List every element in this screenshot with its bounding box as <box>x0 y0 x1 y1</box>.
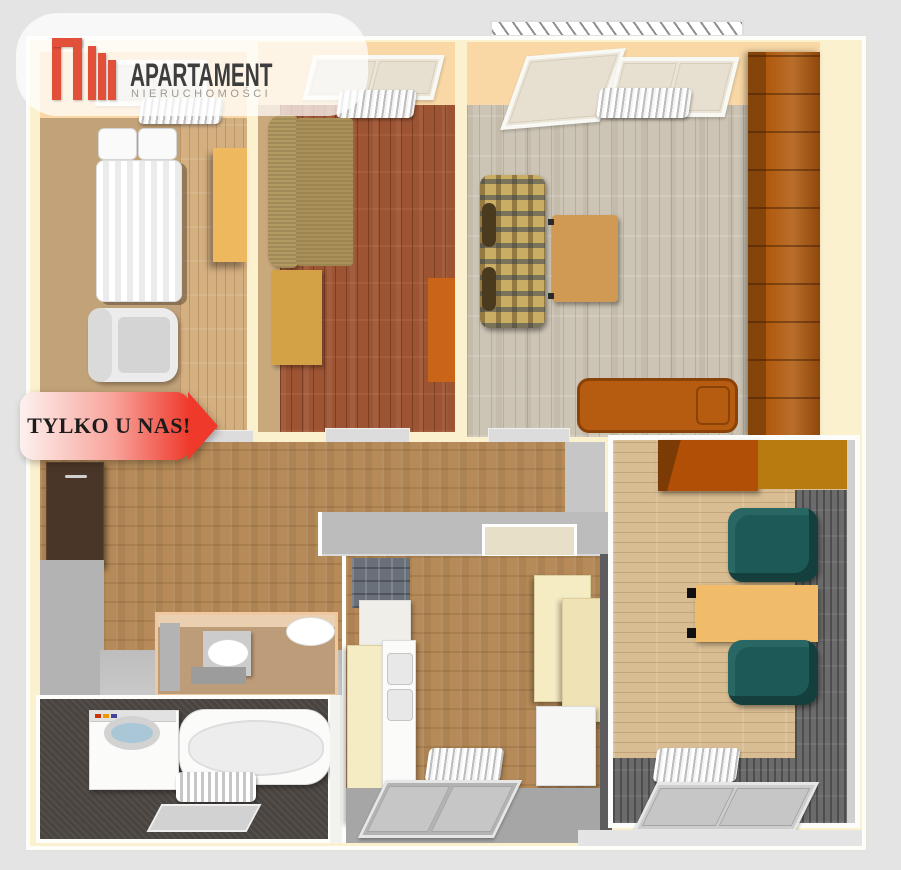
sink-basin <box>387 653 413 685</box>
counter-opening <box>482 524 577 558</box>
lounge-cabinet <box>272 270 322 365</box>
washing-machine-light <box>103 714 109 718</box>
hallway-wall-gray <box>40 560 104 700</box>
toilet <box>286 617 335 646</box>
coffee-table <box>552 215 618 302</box>
hallway-wardrobe <box>46 462 104 567</box>
table-leg <box>548 219 554 225</box>
armchair-seat <box>118 317 170 373</box>
sofa-armrest <box>482 203 496 247</box>
room-study <box>608 435 860 828</box>
study-desk <box>695 585 818 642</box>
logo-mark-icon <box>73 38 82 100</box>
kitchen-window <box>358 780 522 838</box>
logo: APARTAMENT NIERUCHOMOŚCI <box>0 0 370 120</box>
lounge-sofa-back <box>268 115 298 268</box>
washing-machine <box>89 710 179 790</box>
daybed <box>577 378 738 433</box>
floorplan-canvas: APARTAMENT NIERUCHOMOŚCI TYLKO U NAS! <box>0 0 901 870</box>
study-cabinet-ochre <box>758 440 847 489</box>
lounge-sofa-seat <box>296 118 353 266</box>
wardrobe-handle <box>65 475 87 478</box>
promo-badge: TYLKO U NAS! <box>20 392 236 460</box>
wc-wall-left <box>160 623 180 691</box>
desk-leg <box>687 628 696 638</box>
armchair-back <box>88 308 112 382</box>
bath-mat <box>176 772 256 802</box>
study-wall-face <box>847 440 855 823</box>
lounge-rug <box>428 278 455 382</box>
hallway-wall-right <box>565 442 605 514</box>
room-kitchen <box>342 556 605 843</box>
plaid-sofa <box>480 175 545 328</box>
bedroom-armchair <box>88 308 178 382</box>
washing-machine-light <box>111 714 117 718</box>
room-living <box>467 42 820 437</box>
window-pane <box>718 788 810 826</box>
washbasin <box>207 639 249 667</box>
double-bed <box>96 160 182 302</box>
bed-pillow <box>98 128 137 160</box>
kitchen-radiator-icon <box>425 748 505 782</box>
logo-subtitle: NIERUCHOMOŚCI <box>131 88 271 100</box>
logo-mark-icon <box>108 60 116 100</box>
kitchen-counter <box>382 640 416 792</box>
study-cabinet-dark <box>658 440 758 491</box>
daybed-pillow <box>696 386 730 425</box>
promo-badge-label: TYLKO U NAS! <box>20 392 198 460</box>
washing-machine-light <box>95 714 101 718</box>
logo-mark-icon <box>98 53 106 100</box>
room-bathroom <box>36 695 332 843</box>
table-leg <box>548 293 554 299</box>
sofa-armrest <box>482 267 496 311</box>
study-armchair <box>728 640 818 705</box>
kitchen-fridge <box>536 706 596 786</box>
living-radiator-icon <box>596 88 692 118</box>
logo-mark-icon <box>88 46 96 100</box>
study-armchair <box>728 508 818 582</box>
pass-through-counter <box>318 512 609 556</box>
study-radiator-icon <box>653 748 741 782</box>
washing-machine-drum <box>104 716 160 750</box>
bg-patch <box>578 830 862 846</box>
wc-step <box>191 667 246 684</box>
desk-leg <box>687 588 696 598</box>
room-wc <box>155 612 338 697</box>
study-window <box>633 782 819 832</box>
logo-mark-icon <box>52 38 61 100</box>
bedroom-desk <box>213 148 247 262</box>
bathtub-basin <box>188 720 324 776</box>
sink-basin <box>387 689 413 721</box>
bed-pillow <box>138 128 177 160</box>
living-wardrobe <box>748 52 820 437</box>
bath-rug <box>147 804 262 832</box>
